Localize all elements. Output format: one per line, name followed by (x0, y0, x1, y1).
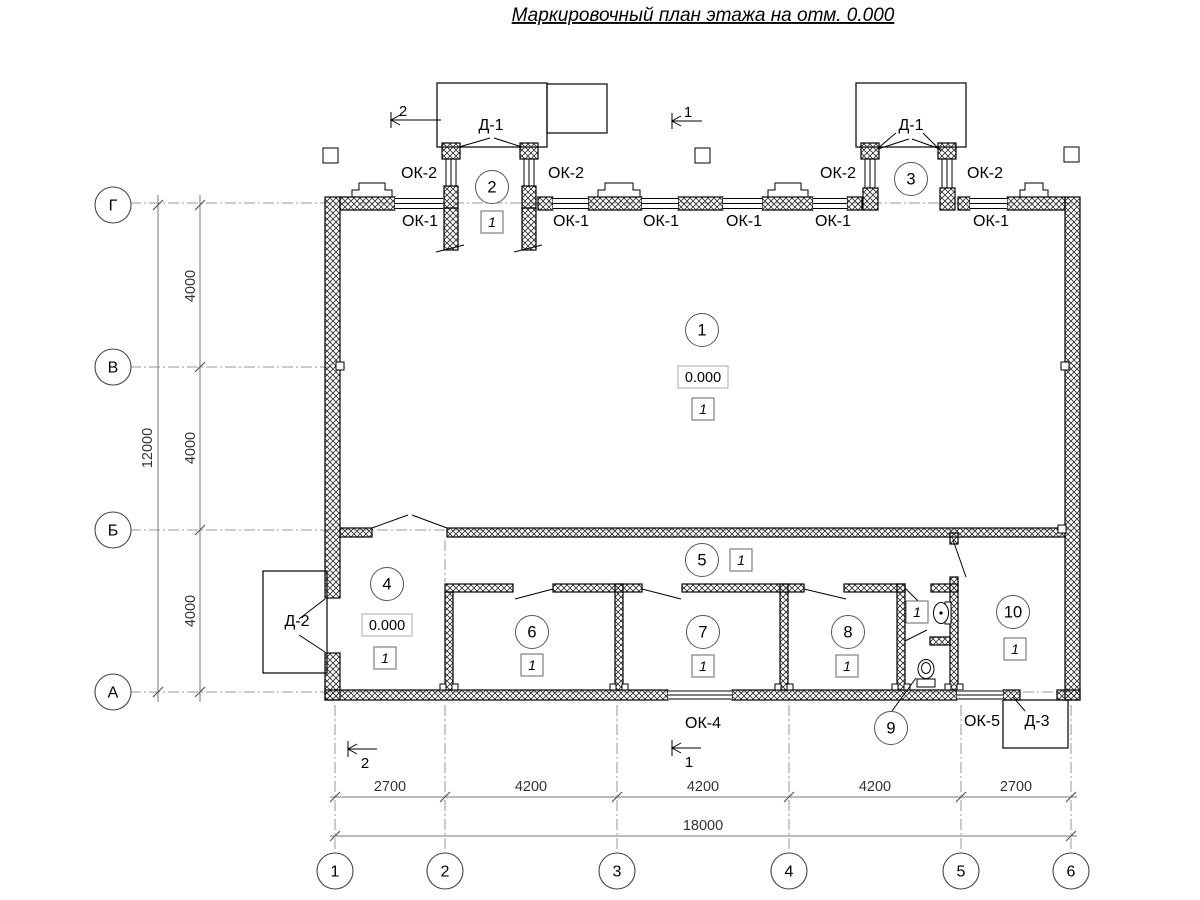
dim-h-segment-3: 4200 (687, 779, 719, 795)
room-number-5: 5 (697, 552, 706, 570)
floor-marker-room10: 1 (1011, 641, 1019, 657)
toilet (917, 660, 935, 688)
axis-label-5: 5 (957, 864, 966, 881)
axis-label-a: А (108, 685, 119, 702)
vestibule2-left-mid (444, 186, 458, 208)
floor-marker-room1: 1 (699, 401, 707, 417)
label-ok4: ОК-4 (685, 715, 721, 732)
vestibule2-left-jamb (442, 143, 460, 159)
marker-square-right (1064, 147, 1079, 162)
label-d2: Д-2 (284, 613, 309, 630)
axis-label-3: 3 (613, 864, 622, 881)
partition-washroom-west (897, 584, 905, 690)
partition-room4-6 (445, 592, 453, 690)
floor-marker-room4: 1 (381, 650, 389, 666)
window-ok4 (668, 690, 732, 700)
axis-label-2: 2 (441, 864, 450, 881)
label-ok1-4: ОК-1 (726, 213, 762, 230)
axis-label-4: 4 (785, 864, 794, 881)
dim-v-segment-2: 4000 (183, 432, 199, 464)
wall-axisB-left (340, 528, 372, 537)
partition-washroom-east (950, 577, 958, 690)
label-ok1-1: ОК-1 (402, 213, 438, 230)
room-number-2: 2 (487, 179, 496, 197)
section-label-1-bottom: 1 (685, 754, 693, 771)
label-d3: Д-3 (1024, 713, 1049, 730)
vestibule2-right-mid (522, 186, 536, 208)
label-ok2-4: ОК-2 (967, 165, 1003, 182)
floor-plan-drawing: Маркировочный план этажа на отм. 0.000 4… (0, 0, 1200, 900)
label-ok1-6: ОК-1 (973, 213, 1009, 230)
axis-label-1: 1 (331, 864, 340, 881)
axis-label-v: В (108, 360, 119, 377)
section-label-1-top: 1 (684, 104, 692, 121)
dim-h-segment-2: 4200 (515, 779, 547, 795)
partition-wc-divider (930, 637, 950, 645)
window-ok5 (957, 690, 1003, 700)
dim-h-total: 18000 (683, 818, 723, 834)
room-number-7: 7 (698, 624, 707, 642)
dim-v-segment-1: 4000 (183, 270, 199, 302)
vestibule2-left-lower (444, 208, 458, 250)
vestibule3-left-base (863, 188, 878, 210)
wall-corridor-2 (553, 584, 642, 592)
dim-v-segment-3: 4000 (183, 595, 199, 627)
wall-top-pier-3 (588, 197, 642, 210)
dim-h-segment-1: 2700 (374, 779, 406, 795)
room-number-3: 3 (906, 171, 915, 189)
wall-ext-left-upper (325, 197, 340, 598)
dim-v-total: 12000 (140, 428, 156, 468)
wall-axisB-main (447, 528, 1065, 537)
partition-room7-8 (780, 584, 788, 690)
room-number-1: 1 (697, 322, 706, 340)
wall-ext-right (1065, 197, 1080, 700)
label-ok2-3: ОК-2 (820, 165, 856, 182)
wall-top-pier-2 (538, 197, 553, 210)
vestibule3-right-base (940, 188, 955, 210)
wall-corridor-4 (844, 584, 905, 592)
floor-marker-room2: 1 (488, 214, 496, 230)
wall-top-pier-1 (340, 197, 395, 210)
wall-top-pier-4 (678, 197, 723, 210)
floor-marker-room7: 1 (699, 658, 707, 674)
vestibule3-left-jamb (861, 143, 879, 159)
paper-background (0, 0, 1200, 900)
elevation-value-room1: 0.000 (685, 370, 721, 386)
floor-marker-room8: 1 (843, 658, 851, 674)
axis-label-b: Б (108, 523, 119, 540)
label-ok2-2: ОК-2 (548, 165, 584, 182)
sink (934, 602, 952, 624)
elevation-value-room4: 0.000 (369, 618, 405, 634)
label-ok5: ОК-5 (964, 713, 1000, 730)
label-d1-left: Д-1 (478, 117, 503, 134)
partition-room6-7 (615, 584, 623, 690)
section-label-2-bottom: 2 (361, 755, 369, 772)
vestibule2-right-jamb (520, 143, 538, 159)
label-ok1-2: ОК-1 (553, 213, 589, 230)
label-ok1-3: ОК-1 (643, 213, 679, 230)
wall-top-pier-8 (1007, 197, 1065, 210)
plan-canvas: Маркировочный план этажа на отм. 0.000 4… (0, 0, 1200, 900)
wall-corridor-1 (445, 584, 513, 592)
wall-top-pier-6 (847, 197, 862, 210)
axis-label-g: Г (109, 198, 118, 215)
label-ok1-5: ОК-1 (815, 213, 851, 230)
wall-bottom-1 (325, 690, 668, 700)
drawing-title: Маркировочный план этажа на отм. 0.000 (512, 5, 895, 26)
floor-marker-room6: 1 (528, 657, 536, 673)
room-number-6: 6 (527, 624, 536, 642)
dim-h-segment-4: 4200 (859, 779, 891, 795)
marker-square-left (323, 148, 338, 163)
room-number-10: 10 (1004, 604, 1022, 622)
wall-top-pier-5 (762, 197, 813, 210)
floor-marker-room5: 1 (737, 552, 745, 568)
label-d1-right: Д-1 (898, 117, 923, 134)
marker-square-center (695, 148, 710, 163)
room-number-9: 9 (886, 720, 895, 738)
section-label-2-top: 2 (399, 103, 407, 120)
wall-top-pier-7 (958, 197, 970, 210)
vestibule2-right-lower (522, 208, 536, 250)
wall-bottom-3 (1003, 690, 1020, 700)
wall-bottom-4 (1057, 690, 1080, 700)
floor-marker-room9: 1 (913, 604, 921, 620)
dim-h-segment-5: 2700 (1000, 779, 1032, 795)
room-number-4: 4 (382, 576, 391, 594)
axis-label-6: 6 (1067, 864, 1076, 881)
label-ok2-1: ОК-2 (401, 165, 437, 182)
room-number-8: 8 (843, 624, 852, 642)
wall-bottom-2 (732, 690, 957, 700)
